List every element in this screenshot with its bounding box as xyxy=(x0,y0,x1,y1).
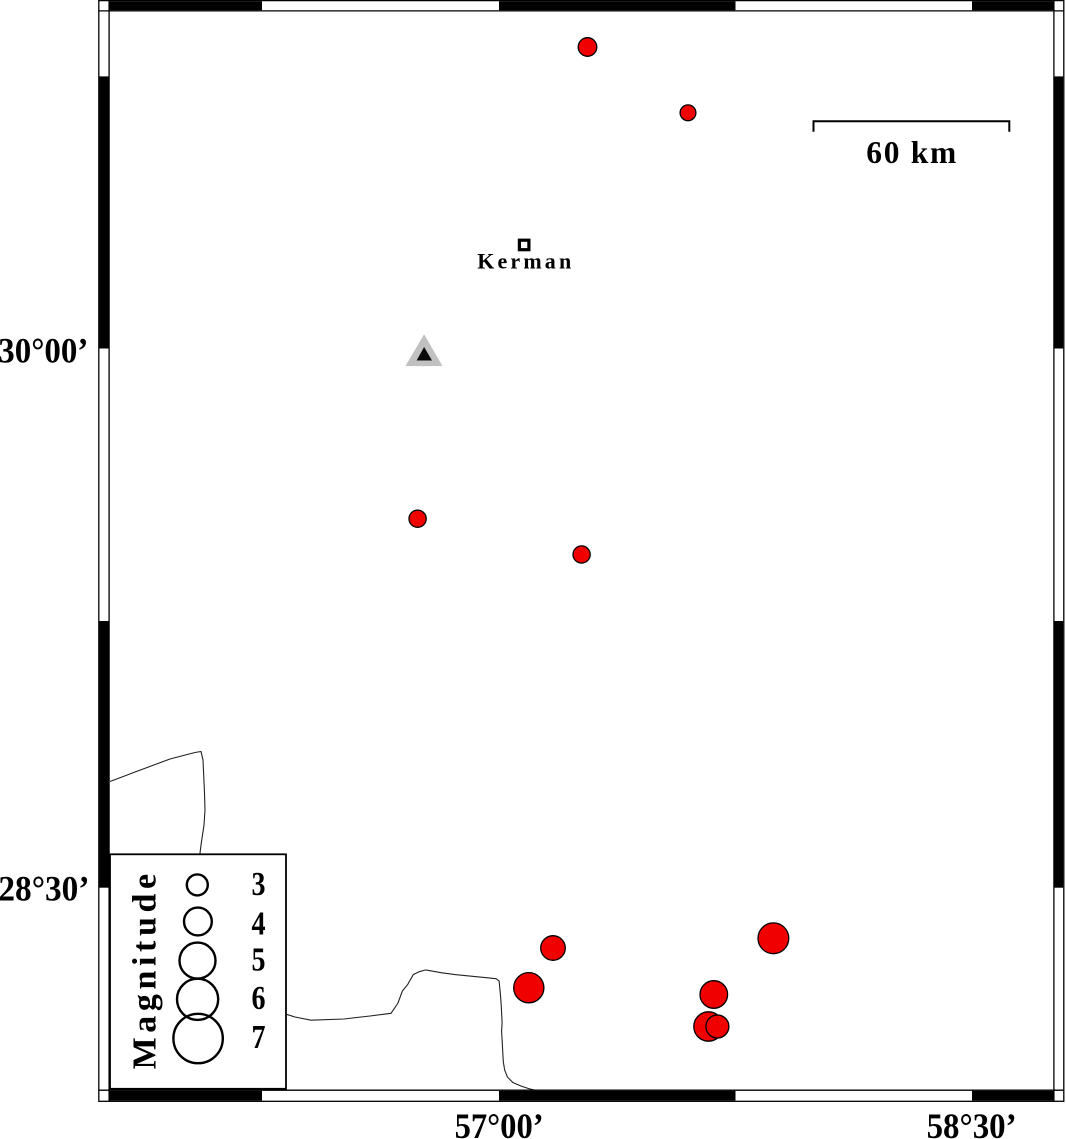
svg-text:28°30’: 28°30’ xyxy=(0,868,89,908)
svg-text:4: 4 xyxy=(252,905,266,942)
svg-text:7: 7 xyxy=(252,1019,266,1056)
svg-text:Magnitude: Magnitude xyxy=(127,869,164,1069)
svg-text:58°30’: 58°30’ xyxy=(927,1106,1017,1139)
svg-text:6: 6 xyxy=(252,980,266,1017)
svg-text:5: 5 xyxy=(252,942,266,979)
svg-text:57°00’: 57°00’ xyxy=(455,1106,544,1139)
svg-text:60 km: 60 km xyxy=(866,135,956,170)
svg-text:3: 3 xyxy=(252,866,266,903)
svg-text:30°00’: 30°00’ xyxy=(0,331,88,371)
